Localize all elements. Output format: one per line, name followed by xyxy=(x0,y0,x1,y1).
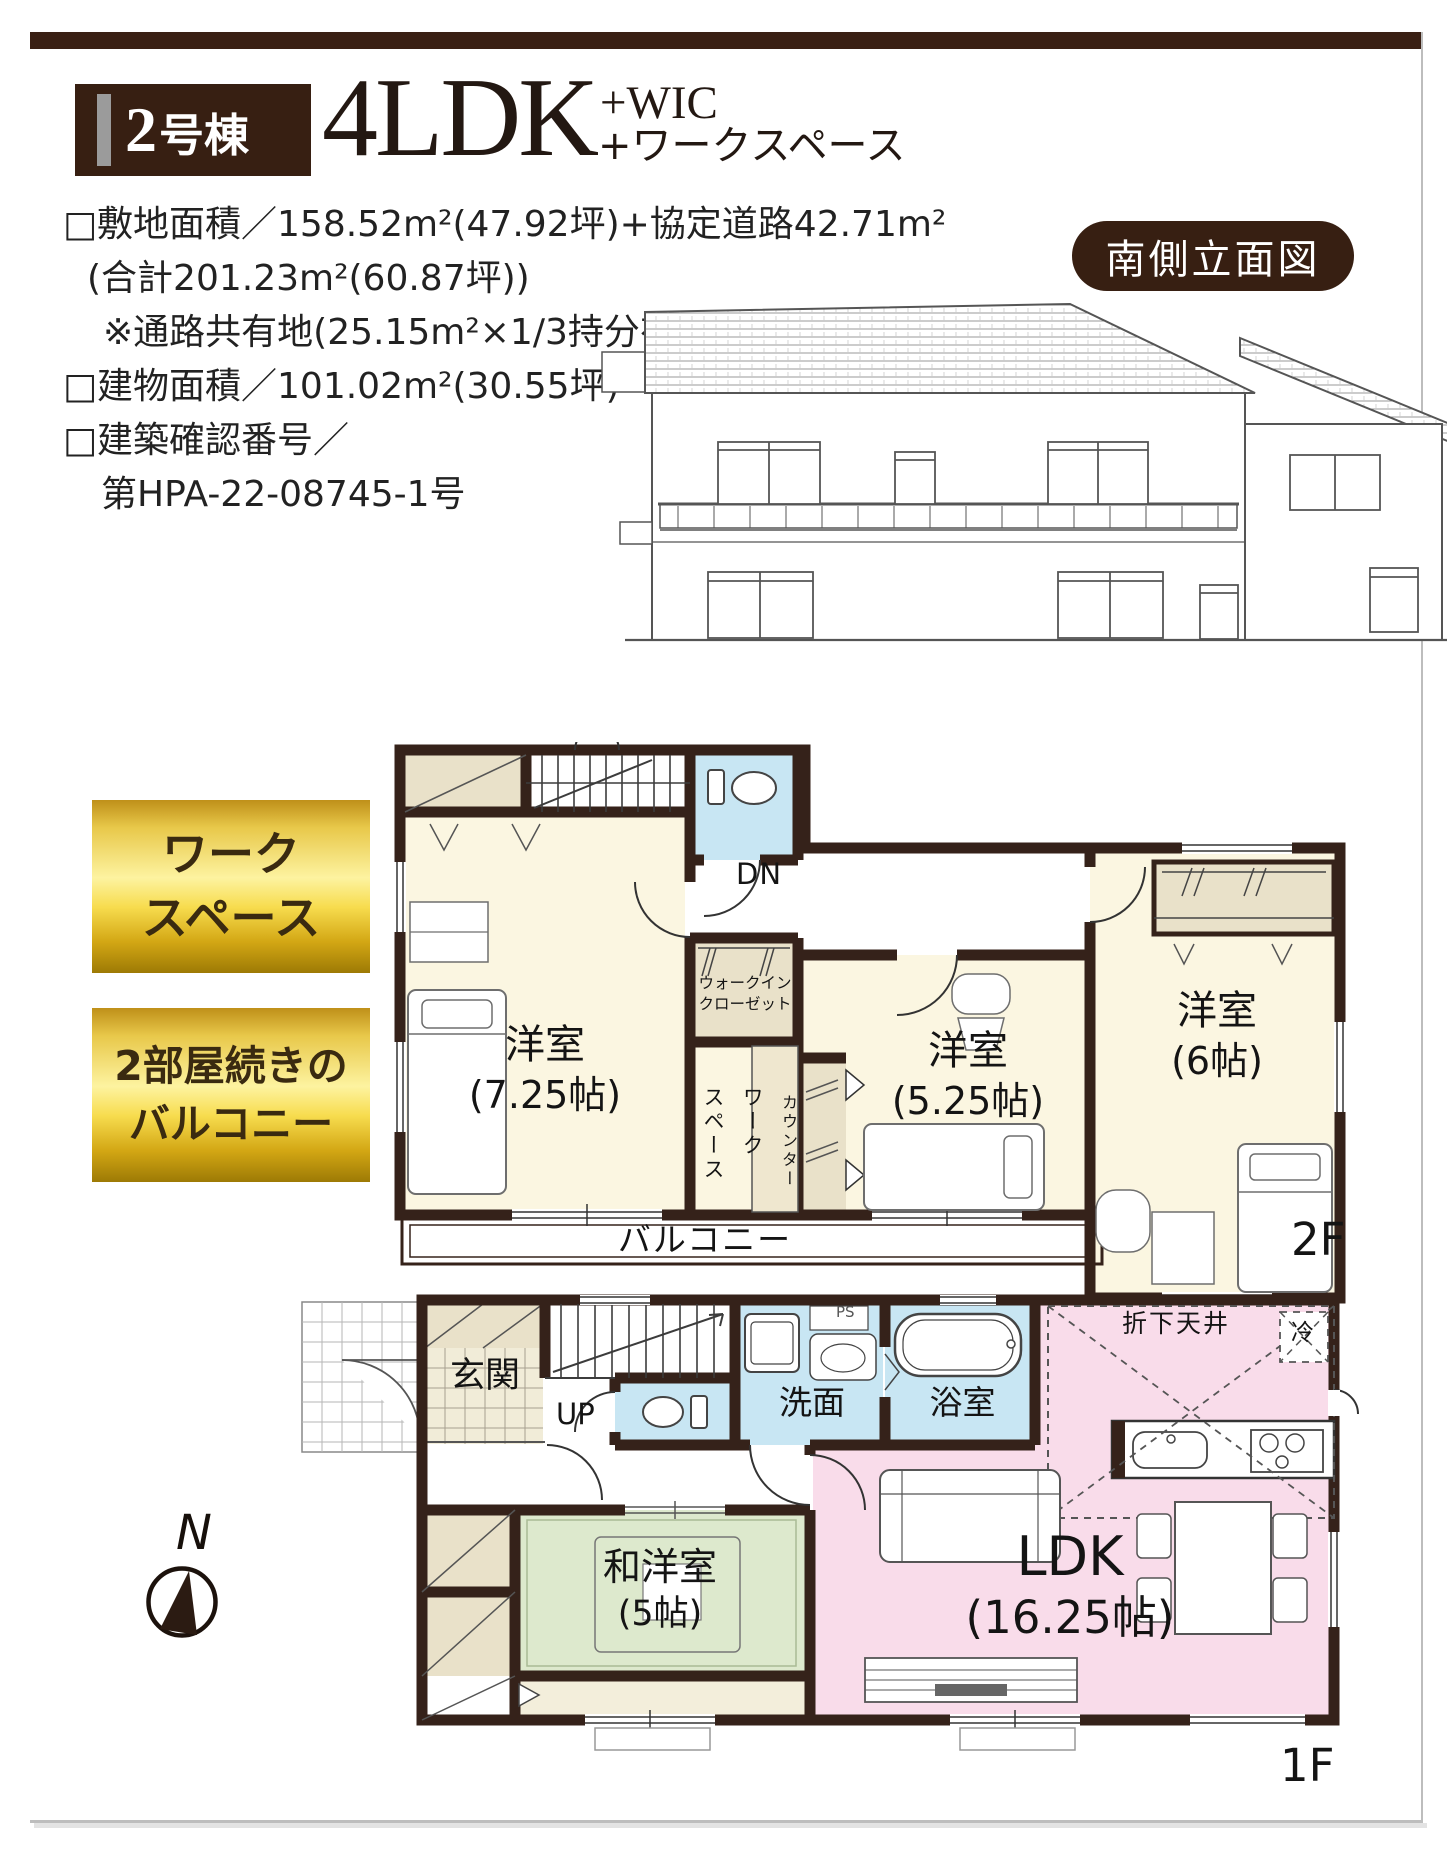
compass-north-label: N xyxy=(176,1506,212,1561)
entrance-label: 玄関 xyxy=(424,1356,546,1396)
wic-line2: クローゼット xyxy=(698,995,791,1013)
ldk-size-label: (16.25帖) xyxy=(905,1592,1235,1644)
room-label-east-2f: 洋室 (6帖) xyxy=(1092,988,1342,1084)
feature-badge-balcony-line1: 2部屋続きの xyxy=(114,1037,348,1095)
ldk-label: LDK xyxy=(930,1526,1210,1588)
ps-label: PS xyxy=(836,1304,855,1321)
flyer-page: 2 号棟 4LDK +WIC +ワークスペース □敷地面積／158.52m²(4… xyxy=(0,0,1447,1865)
workspace-label: スペース ワーク カウンター xyxy=(698,1086,800,1189)
fridge-label: 冷 xyxy=(1291,1320,1314,1346)
room-size: (5.25帖) xyxy=(848,1080,1088,1124)
workspace-line1: ワーク xyxy=(737,1086,767,1158)
room-label-mid-2f: 洋室 (5.25帖) xyxy=(848,1028,1088,1124)
room-name: 洋室 xyxy=(928,1028,1008,1074)
feature-badge-workspace: ワーク スペース xyxy=(92,800,370,973)
plan-type-sub-wic: +WIC xyxy=(600,80,718,127)
page-edge-shadow xyxy=(34,1823,1427,1828)
feature-badge-balcony: 2部屋続きの バルコニー xyxy=(92,1008,370,1182)
stairs-dn-label: DN xyxy=(736,858,782,891)
stairs-up-label: UP xyxy=(556,1398,595,1431)
compass-icon xyxy=(136,1556,228,1648)
room-size: (5帖) xyxy=(515,1594,805,1634)
unit-suffix: 号棟 xyxy=(159,113,249,158)
unit-badge-text: 2 号棟 xyxy=(125,98,249,162)
balcony-label: バルコニー xyxy=(555,1221,855,1259)
elevation-drawing xyxy=(590,290,1447,652)
feature-badge-workspace-line1: ワーク xyxy=(162,823,300,886)
south-elevation-badge: 南側立面図 xyxy=(1072,221,1354,291)
room-size: (6帖) xyxy=(1092,1040,1342,1084)
room-label-west-2f: 洋室 (7.25帖) xyxy=(400,1022,690,1118)
bathroom-label: 浴室 xyxy=(890,1384,1035,1422)
room-name: 洋室 xyxy=(505,1022,585,1068)
wic-label: ウォークイン クローゼット xyxy=(690,973,800,1015)
room-name: 和洋室 xyxy=(603,1545,717,1589)
unit-number: 2 xyxy=(125,98,157,162)
washroom-label: 洗面 xyxy=(742,1384,882,1422)
plan-type-title: 4LDK xyxy=(322,62,596,174)
room-size: (7.25帖) xyxy=(400,1074,690,1118)
feature-badge-workspace-line2: スペース xyxy=(142,887,320,950)
workspace-line2: スペース xyxy=(698,1086,728,1182)
spec-site-area: □敷地面積／158.52m²(47.92坪)+協定道路42.71m² xyxy=(63,198,963,252)
wic-line1: ウォークイン xyxy=(698,974,791,992)
unit-badge-bar-icon xyxy=(97,94,111,166)
plan-type-sub-workspace: +ワークスペース xyxy=(598,126,906,166)
unit-badge: 2 号棟 xyxy=(75,84,311,176)
floor-label-1f: 1F xyxy=(1280,1740,1335,1792)
counter-label: カウンター xyxy=(776,1094,800,1189)
room-name: 洋室 xyxy=(1177,988,1257,1034)
top-accent-bar xyxy=(30,32,1421,49)
dropped-ceiling-label: 折下天井 xyxy=(1122,1310,1230,1339)
feature-badge-balcony-line2: バルコニー xyxy=(129,1095,333,1153)
room-label-japanese: 和洋室 (5帖) xyxy=(515,1546,805,1634)
floor-label-2f: 2F xyxy=(1291,1214,1346,1266)
